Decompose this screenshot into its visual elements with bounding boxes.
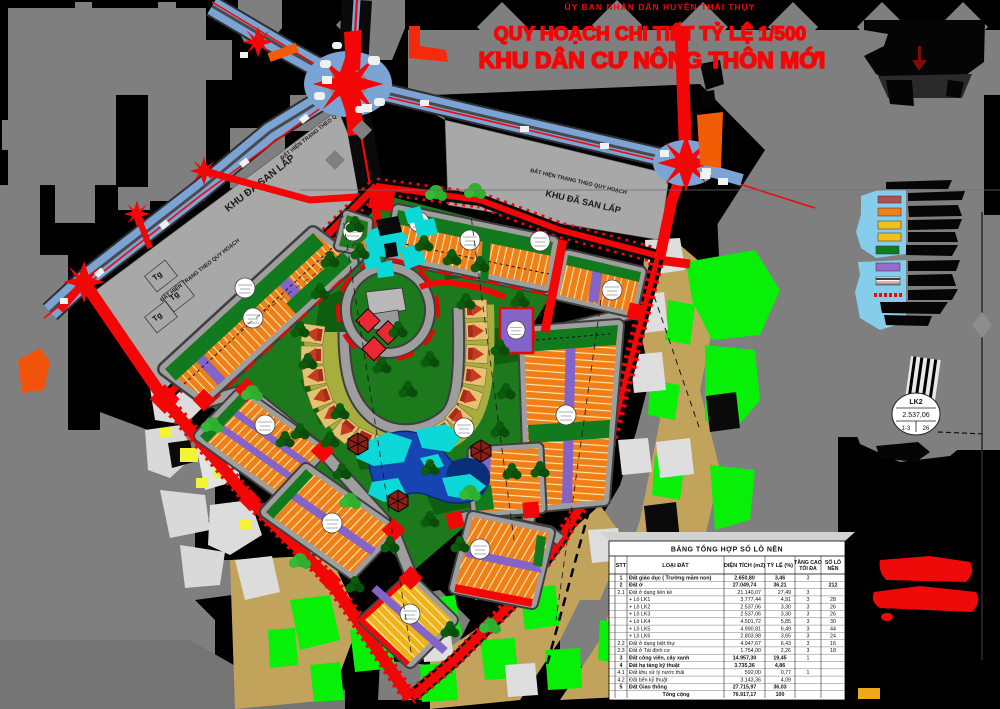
- svg-text:Đất giáo dục ( Trường mầm non): Đất giáo dục ( Trường mầm non): [629, 574, 712, 581]
- svg-text:+ Lô LK5: + Lô LK5: [629, 626, 650, 632]
- svg-text:Đất ở dạng liên kề: Đất ở dạng liên kề: [629, 589, 672, 596]
- svg-text:NỀN: NỀN: [828, 565, 839, 572]
- svg-text:4,86: 4,86: [775, 663, 785, 669]
- svg-text:5,85: 5,85: [781, 619, 791, 625]
- svg-text:4,91: 4,91: [781, 597, 791, 603]
- svg-text:Đất ở: Đất ở: [629, 582, 643, 589]
- svg-text:28: 28: [830, 597, 836, 603]
- svg-text:3: 3: [807, 619, 810, 625]
- svg-text:30: 30: [830, 619, 836, 625]
- svg-text:6,49: 6,49: [781, 626, 791, 632]
- svg-text:Đất khu xử lý nước thải: Đất khu xử lý nước thải: [629, 669, 684, 676]
- svg-text:0,77: 0,77: [781, 670, 791, 676]
- svg-text:19,45: 19,45: [773, 656, 786, 662]
- svg-text:26: 26: [923, 426, 930, 432]
- svg-text:27.049,74: 27.049,74: [733, 583, 757, 589]
- svg-text:2.537,06: 2.537,06: [740, 604, 761, 610]
- svg-text:3: 3: [807, 590, 810, 596]
- svg-text:TỶ LỆ (%): TỶ LỆ (%): [767, 561, 793, 569]
- svg-text:2.3: 2.3: [617, 648, 624, 654]
- svg-text:2.650,80: 2.650,80: [734, 575, 755, 581]
- svg-text:3.735,36: 3.735,36: [734, 663, 755, 669]
- svg-text:QUY HOẠCH CHI TIẾT TỶ LỆ 1/500: QUY HOẠCH CHI TIẾT TỶ LỆ 1/500: [494, 23, 806, 45]
- svg-text:16: 16: [830, 641, 836, 647]
- svg-text:Tổng cộng: Tổng cộng: [662, 691, 689, 698]
- svg-text:4.1: 4.1: [617, 670, 624, 676]
- svg-text:2: 2: [620, 583, 623, 589]
- svg-text:1: 1: [620, 575, 623, 581]
- svg-text:2.2: 2.2: [617, 641, 624, 647]
- svg-text:3,46: 3,46: [775, 575, 785, 581]
- svg-text:4.947,67: 4.947,67: [740, 641, 761, 647]
- svg-text:3: 3: [807, 575, 810, 581]
- svg-text:44: 44: [830, 626, 836, 632]
- svg-text:3: 3: [807, 626, 810, 632]
- svg-text:592,00: 592,00: [745, 670, 761, 676]
- svg-text:2.537,06: 2.537,06: [740, 612, 761, 618]
- svg-text:Đất Giao thông: Đất Giao thông: [629, 684, 667, 691]
- svg-text:TỐI ĐA: TỐI ĐA: [799, 565, 817, 572]
- svg-text:18: 18: [830, 648, 836, 654]
- svg-text:2.803,98: 2.803,98: [740, 634, 761, 640]
- svg-text:36,21: 36,21: [773, 583, 786, 589]
- svg-text:1: 1: [807, 670, 810, 676]
- svg-text:4.2: 4.2: [617, 677, 624, 683]
- svg-text:4.990,81: 4.990,81: [740, 626, 761, 632]
- svg-text:14.957,30: 14.957,30: [733, 656, 757, 662]
- svg-text:+ Lô LK1: + Lô LK1: [629, 597, 650, 603]
- svg-text:3: 3: [807, 604, 810, 610]
- svg-text:Đất công viên, cây xanh: Đất công viên, cây xanh: [629, 655, 689, 662]
- svg-text:STT: STT: [616, 563, 627, 569]
- svg-text:26: 26: [830, 604, 836, 610]
- svg-text:KHU DÂN CƯ NÔNG THÔN MỚI: KHU DÂN CƯ NÔNG THÔN MỚI: [479, 46, 826, 73]
- svg-text:27.715,97: 27.715,97: [733, 685, 757, 691]
- svg-text:2.537,06: 2.537,06: [902, 412, 929, 419]
- svg-text:+ Lô LK3: + Lô LK3: [629, 612, 650, 618]
- svg-text:27,49: 27,49: [778, 590, 791, 596]
- svg-text:SỐ LÔ: SỐ LÔ: [825, 558, 841, 566]
- svg-text:36,03: 36,03: [773, 685, 786, 691]
- svg-text:21.140,07: 21.140,07: [737, 590, 761, 596]
- svg-text:3: 3: [807, 634, 810, 640]
- svg-text:4,09: 4,09: [781, 677, 791, 683]
- svg-text:TẦNG CAO: TẦNG CAO: [794, 559, 822, 566]
- svg-text:Đất bến kỹ thuật: Đất bến kỹ thuật: [629, 677, 668, 683]
- svg-text:3,30: 3,30: [781, 612, 791, 618]
- svg-text:Đất ở Tái định cư: Đất ở Tái định cư: [629, 647, 671, 654]
- svg-text:+ Lô LK4: + Lô LK4: [629, 619, 650, 625]
- svg-text:3: 3: [807, 648, 810, 654]
- svg-text:2.1: 2.1: [617, 590, 624, 596]
- svg-text:24: 24: [830, 634, 836, 640]
- svg-text:ỦY BAN NHÂN DÂN HUYỆN THÁI THỤ: ỦY BAN NHÂN DÂN HUYỆN THÁI THỤY: [565, 1, 756, 12]
- svg-text:LK2: LK2: [909, 399, 922, 406]
- svg-text:1: 1: [807, 656, 810, 662]
- svg-text:+ Lô LK2: + Lô LK2: [629, 604, 650, 610]
- svg-text:3,30: 3,30: [781, 604, 791, 610]
- svg-text:212: 212: [829, 583, 838, 589]
- svg-text:4: 4: [620, 663, 623, 669]
- svg-text:3: 3: [620, 656, 623, 662]
- svg-text:DIỆN TÍCH (m2): DIỆN TÍCH (m2): [724, 561, 765, 569]
- svg-text:1.754,00: 1.754,00: [740, 648, 761, 654]
- svg-text:2,26: 2,26: [781, 648, 791, 654]
- svg-text:LOẠI ĐẤT: LOẠI ĐẤT: [662, 562, 689, 569]
- svg-text:100: 100: [776, 692, 785, 698]
- svg-text:5: 5: [620, 685, 623, 691]
- svg-text:Đất hạ tầng kỹ thuật: Đất hạ tầng kỹ thuật: [629, 662, 680, 669]
- svg-text:+ Lô LK6: + Lô LK6: [629, 634, 650, 640]
- svg-text:3: 3: [807, 597, 810, 603]
- svg-text:3: 3: [807, 641, 810, 647]
- svg-text:76.917,17: 76.917,17: [733, 692, 757, 698]
- svg-text:4.501,72: 4.501,72: [740, 619, 761, 625]
- svg-text:3,65: 3,65: [781, 634, 791, 640]
- svg-text:1-3: 1-3: [902, 426, 911, 432]
- svg-text:Đất ở dạng biệt thự: Đất ở dạng biệt thự: [629, 640, 675, 647]
- svg-text:26: 26: [830, 612, 836, 618]
- svg-text:3.777,44: 3.777,44: [740, 597, 761, 603]
- svg-text:3: 3: [807, 612, 810, 618]
- svg-text:6,43: 6,43: [781, 641, 791, 647]
- svg-text:3.143,36: 3.143,36: [740, 677, 761, 683]
